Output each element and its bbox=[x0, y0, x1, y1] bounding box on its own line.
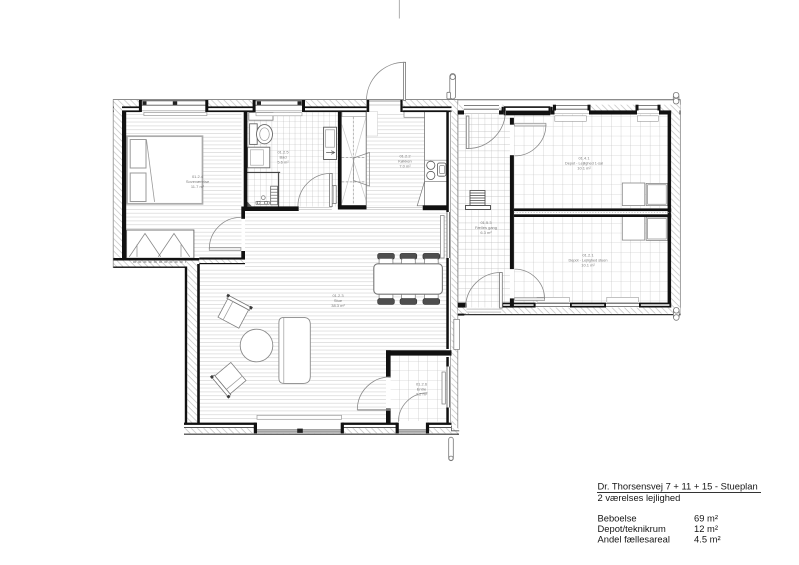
svg-text:Dr. Thorsensvej 7 + 11 + 15 -: Dr. Thorsensvej 7 + 11 + 15 - Stueplan bbox=[598, 481, 758, 492]
svg-text:4.5 m²: 4.5 m² bbox=[694, 534, 721, 545]
svg-text:5.6 m²: 5.6 m² bbox=[277, 160, 289, 165]
svg-text:7.0 m²: 7.0 m² bbox=[399, 164, 411, 169]
svg-text:10.1 m²: 10.1 m² bbox=[581, 263, 595, 268]
svg-text:2.2 m²: 2.2 m² bbox=[416, 392, 428, 397]
svg-text:11.7 m²: 11.7 m² bbox=[191, 184, 205, 189]
svg-text:Beboelse: Beboelse bbox=[598, 513, 637, 524]
svg-text:12 m²: 12 m² bbox=[694, 523, 718, 534]
svg-text:01.2.1: 01.2.1 bbox=[582, 253, 594, 258]
svg-text:38.3 m²: 38.3 m² bbox=[331, 303, 345, 308]
svg-text:2 værelses lejlighed: 2 værelses lejlighed bbox=[598, 492, 681, 503]
svg-text:10.1 m²: 10.1 m² bbox=[577, 166, 591, 171]
svg-text:01.4.1: 01.4.1 bbox=[578, 156, 590, 161]
svg-text:69 m²: 69 m² bbox=[694, 513, 718, 524]
svg-text:6.3 m²: 6.3 m² bbox=[480, 230, 492, 235]
svg-text:Depot/teknikrum: Depot/teknikrum bbox=[598, 523, 666, 534]
svg-text:Andel fællesareal: Andel fællesareal bbox=[598, 534, 670, 545]
